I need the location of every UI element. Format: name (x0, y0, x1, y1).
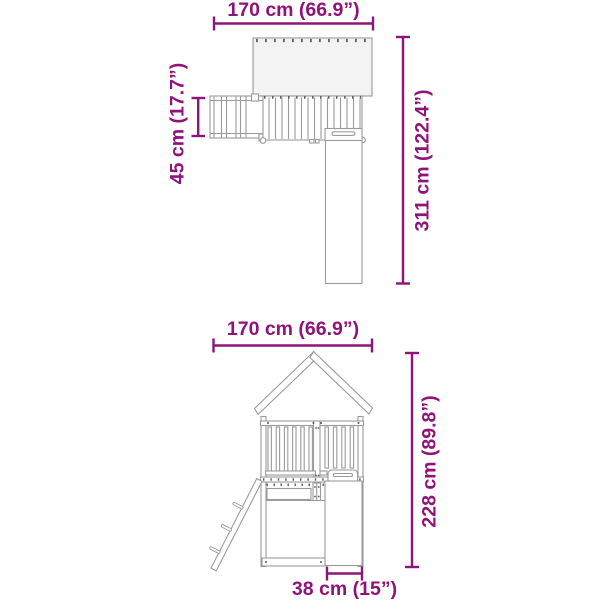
ladder-top-view (210, 94, 265, 141)
front-height-dimension-line (405, 353, 419, 567)
top-length-dimension-line (396, 37, 410, 284)
top-length-dimension-label: 311 cm (122.4”) (412, 60, 437, 260)
top-depth-dimension-line (192, 98, 206, 136)
bottom-beam-front-view (262, 558, 325, 566)
top-depth-dimension-label: 45 cm (17.7”) (167, 43, 190, 203)
roof-front-view (255, 352, 373, 415)
top-view-drawing (210, 38, 372, 284)
slide-top-view (325, 129, 362, 284)
front-width-dimension-line (214, 339, 373, 353)
front-width-dimension-label: 170 cm (66.9”) (212, 318, 374, 340)
diagram-canvas (0, 0, 610, 610)
slide-front-view (325, 470, 362, 566)
dimension-diagram: 170 cm (66.9”) 45 cm (17.7”) 311 cm (122… (0, 0, 610, 610)
ladder-front-view (211, 479, 262, 571)
roof-top-view (253, 38, 372, 96)
front-height-dimension-label: 228 cm (89.8”) (418, 361, 443, 561)
top-width-dimension-label: 170 cm (66.9”) (213, 0, 374, 21)
slide-width-dimension-label: 38 cm (15”) (265, 578, 425, 600)
front-view-drawing (211, 352, 373, 571)
